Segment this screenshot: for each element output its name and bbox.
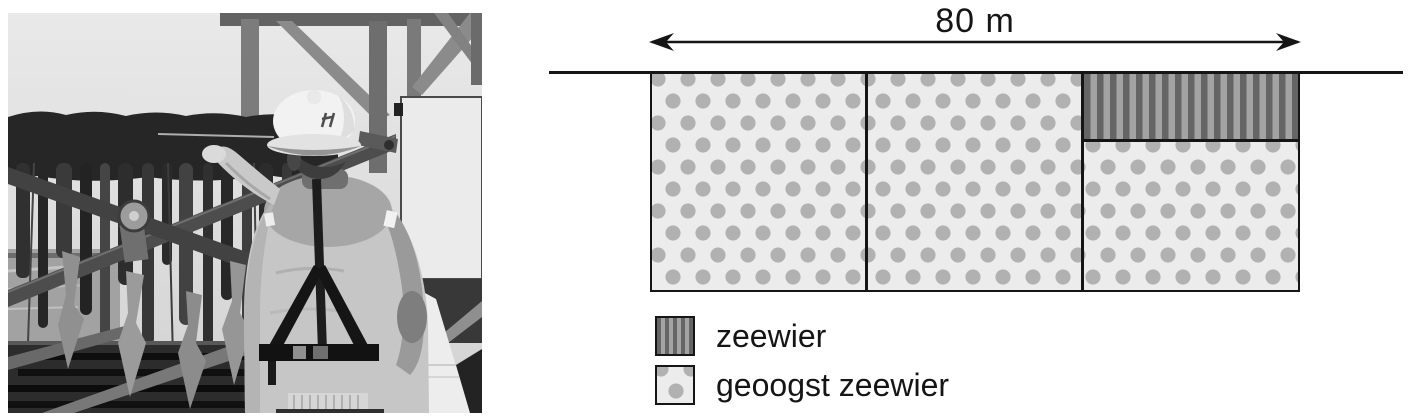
legend-label: geoogst zeewier — [716, 365, 949, 405]
legend-item-geoogst-zeewier: geoogst zeewier — [655, 365, 949, 405]
figure: 80 m zeewier geoogst zeewier — [0, 0, 1409, 420]
legend-item-zeewier: zeewier — [655, 316, 949, 356]
unharvested-seaweed-zone — [1081, 74, 1298, 142]
stripes-swatch-icon — [655, 316, 695, 356]
dimension-arrow — [646, 29, 1304, 55]
section-divider-1 — [865, 74, 868, 290]
hand — [202, 145, 226, 163]
seaweed-field-diagram — [650, 72, 1300, 292]
dots-swatch-icon — [655, 365, 695, 405]
legend: zeewier geoogst zeewier — [655, 316, 949, 405]
photo-illustration — [8, 13, 482, 413]
legend-label: zeewier — [716, 316, 826, 356]
photo-seaweed-harvest — [8, 13, 482, 413]
